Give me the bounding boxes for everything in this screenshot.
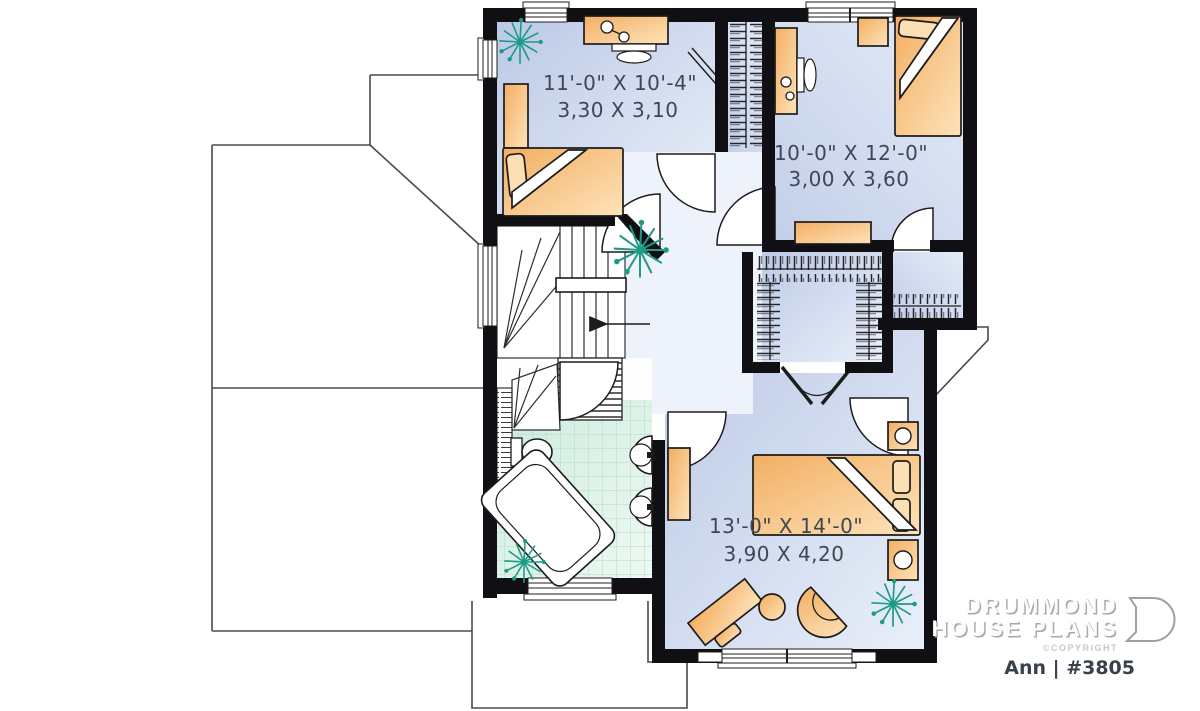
wall — [924, 318, 937, 663]
pillow-icon — [893, 461, 910, 493]
bedroom1-dim-metric: 3,30 X 3,10 — [558, 98, 679, 122]
wall — [930, 240, 977, 252]
desk-chair-icon — [617, 51, 651, 63]
bedroom1-dim-imperial: 11'-0" X 10'-4" — [543, 71, 697, 95]
window — [478, 244, 497, 328]
wall — [742, 252, 753, 365]
bedroom2-dim-metric: 3,00 X 3,60 — [789, 167, 910, 191]
brand-d-logo-icon — [1127, 598, 1175, 641]
window — [698, 649, 876, 668]
nightstand-icon — [858, 18, 888, 46]
bed-icon — [503, 148, 623, 216]
wall — [742, 362, 780, 373]
stool-icon — [759, 594, 785, 620]
copyright-label: ©COPYRIGHT — [1043, 643, 1118, 653]
floor-plan-svg: 11'-0" X 10'-4" 3,30 X 3,10 10'-0" X 12'… — [0, 0, 1200, 711]
bedroom2-dim-imperial: 10'-0" X 12'-0" — [774, 141, 928, 165]
wall — [963, 8, 977, 330]
wall — [882, 252, 893, 362]
lamp-icon — [894, 551, 912, 569]
wall — [762, 152, 775, 240]
wall — [762, 8, 775, 152]
window — [523, 2, 569, 22]
wall — [845, 362, 893, 373]
stair-handrail — [556, 278, 626, 292]
nightstand-icon — [888, 540, 918, 580]
lamp-icon — [895, 428, 911, 444]
brand-block: DRUMMOND DRUMMOND HOUSE PLANS HOUSE PLAN… — [932, 593, 1175, 679]
desk-icon — [775, 28, 797, 114]
window — [478, 38, 497, 80]
brand-line2: HOUSE PLANS — [932, 616, 1118, 641]
plan-name: Ann | #3805 — [1004, 657, 1135, 679]
bed-icon — [895, 16, 961, 136]
brand-line1: DRUMMOND — [965, 593, 1118, 618]
master-dim-imperial: 13'-0" X 14'-0" — [709, 514, 863, 538]
nightstand-icon — [888, 422, 918, 450]
master-dim-metric: 3,90 X 4,20 — [724, 542, 845, 566]
wall — [715, 8, 728, 152]
dresser-icon — [668, 448, 690, 520]
dresser-icon — [504, 84, 528, 148]
desk-chair-icon — [804, 59, 816, 91]
towel-shelves — [497, 388, 512, 480]
dresser-icon — [795, 222, 871, 244]
floor-plan-page: 11'-0" X 10'-4" 3,30 X 3,10 10'-0" X 12'… — [0, 0, 1200, 711]
